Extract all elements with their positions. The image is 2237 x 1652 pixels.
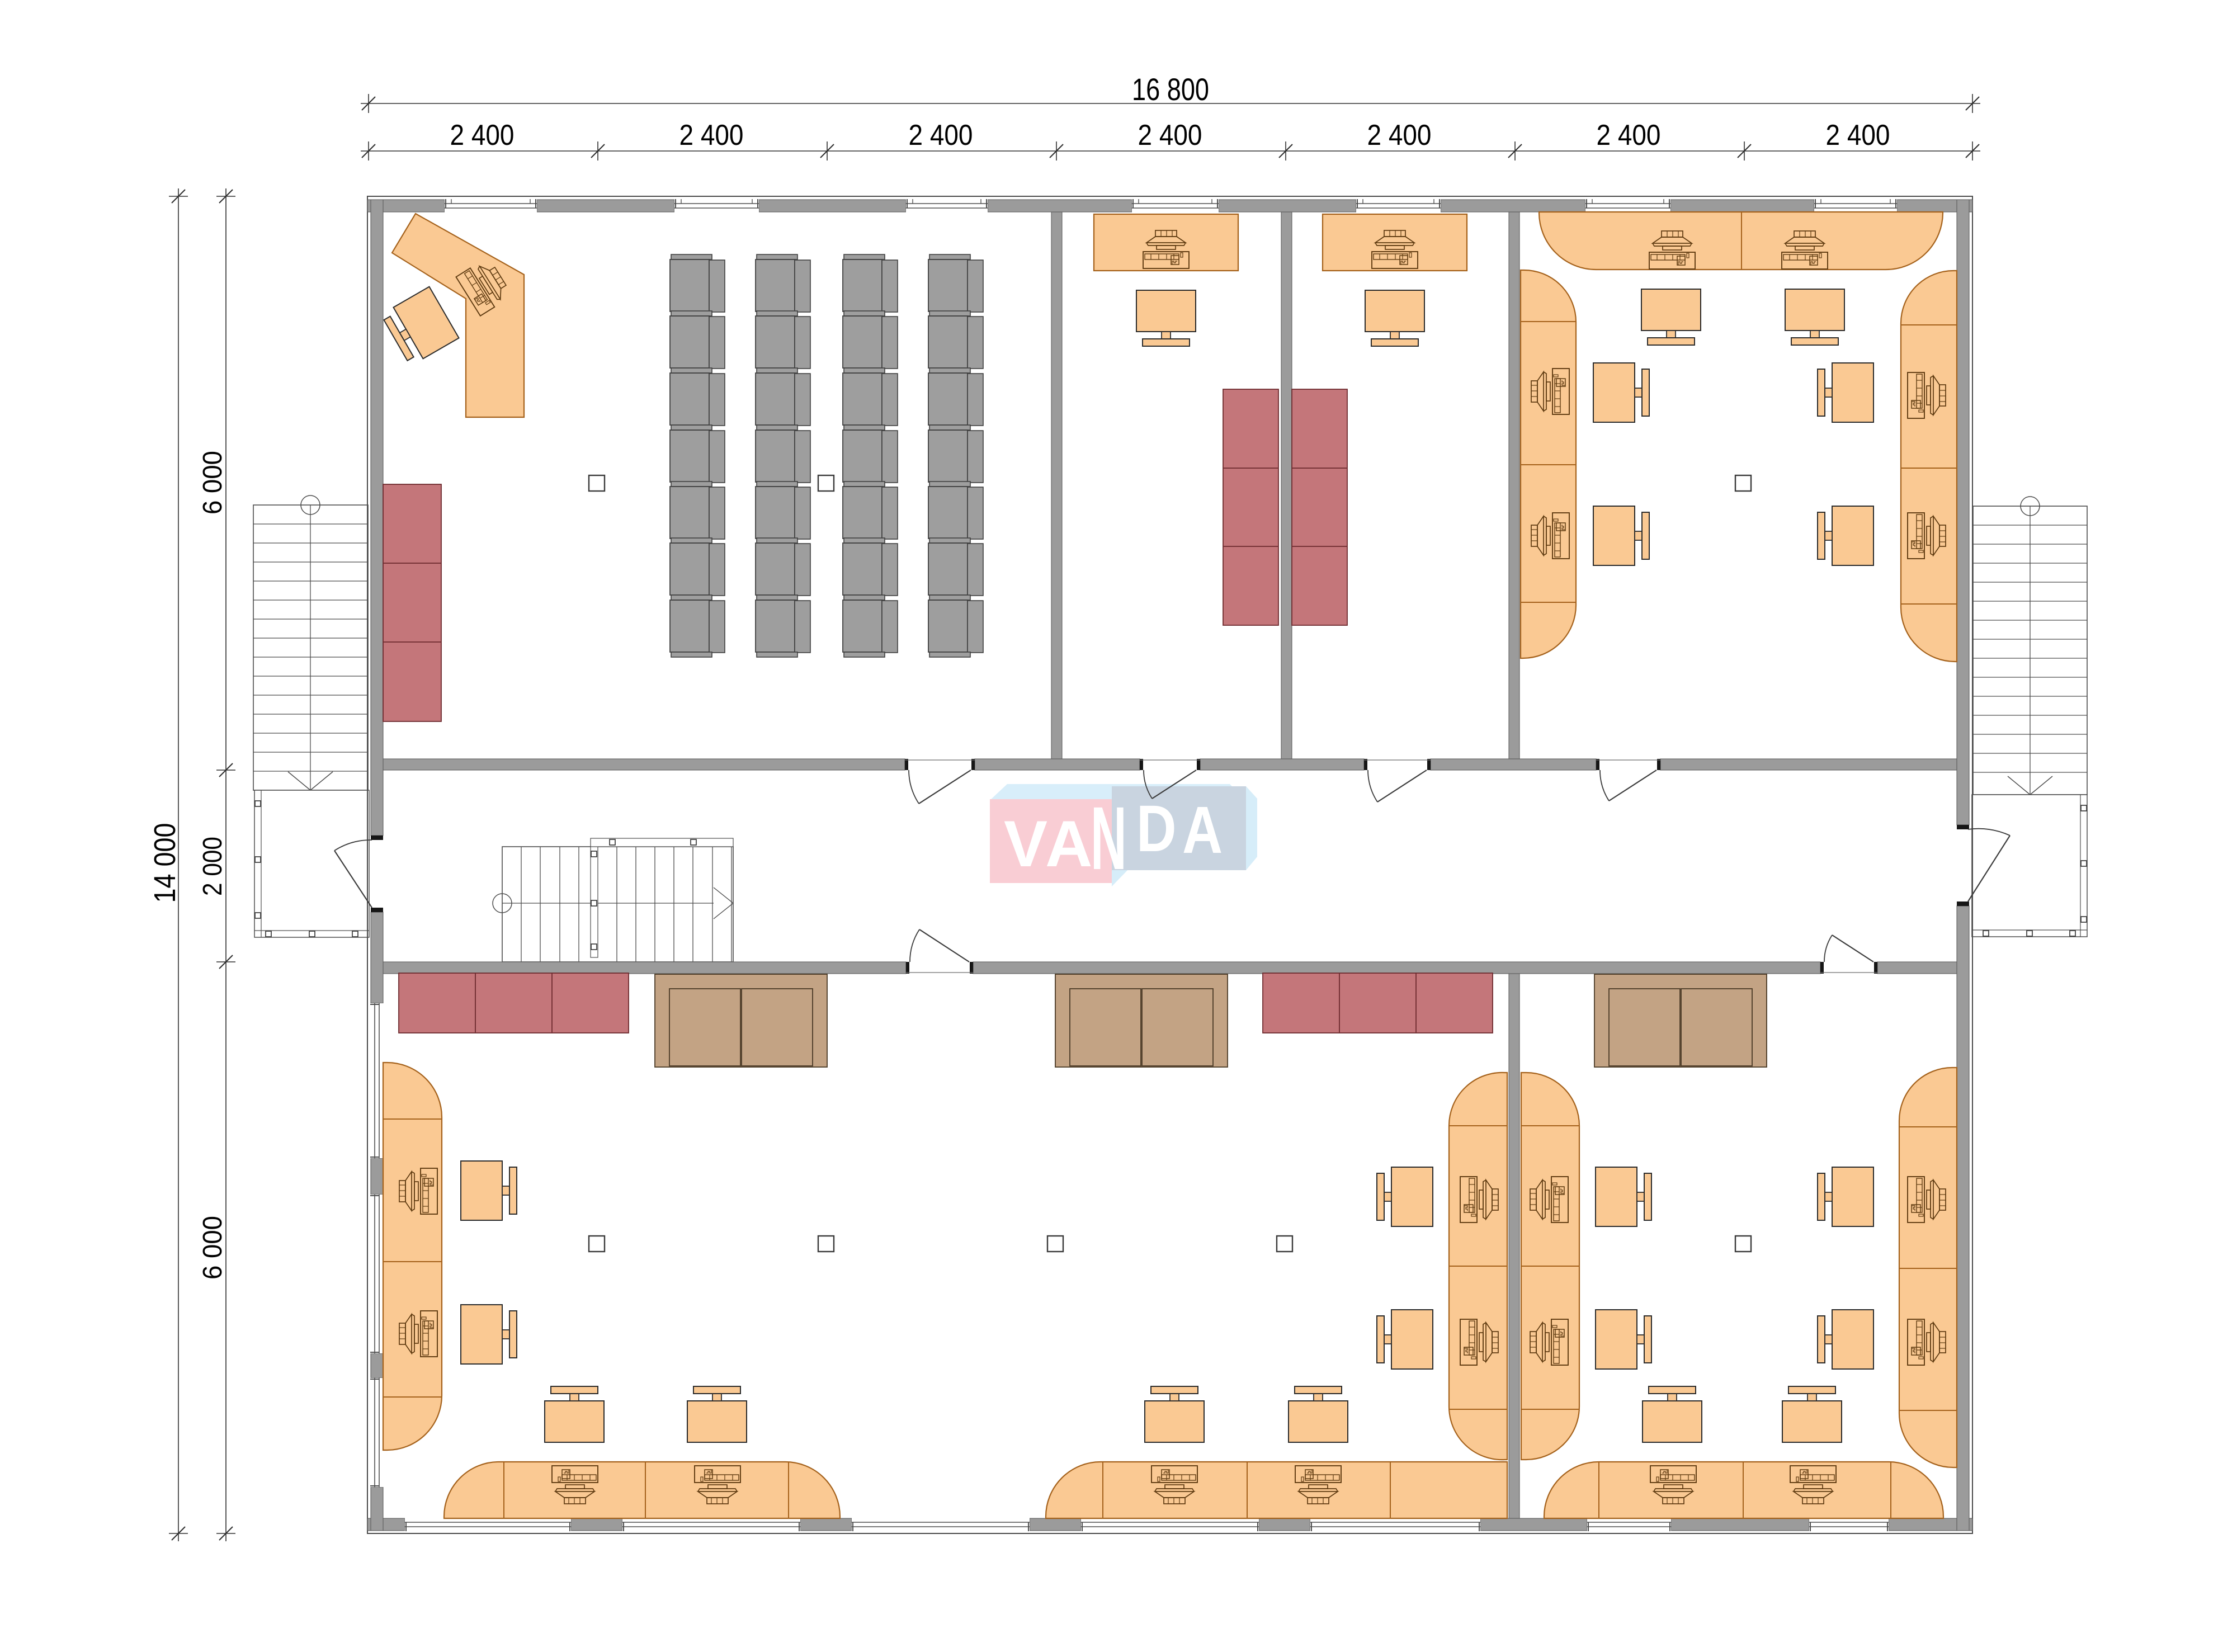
svg-text:2 400: 2 400 <box>450 119 515 152</box>
svg-text:14 000: 14 000 <box>148 823 182 903</box>
svg-text:2 400: 2 400 <box>1826 119 1890 152</box>
svg-text:N: N <box>1091 789 1127 889</box>
svg-text:2 400: 2 400 <box>1138 119 1202 152</box>
svg-text:A: A <box>1045 807 1093 880</box>
svg-text:D: D <box>1136 792 1177 866</box>
svg-text:V: V <box>1004 807 1047 880</box>
svg-text:2 400: 2 400 <box>1367 119 1432 152</box>
svg-text:2 400: 2 400 <box>909 119 973 152</box>
svg-text:6 000: 6 000 <box>198 1216 228 1280</box>
svg-text:2 000: 2 000 <box>198 837 228 896</box>
svg-text:2 400: 2 400 <box>679 119 744 152</box>
svg-text:16 800: 16 800 <box>1132 72 1209 107</box>
svg-text:6 000: 6 000 <box>198 451 228 515</box>
svg-text:2 400: 2 400 <box>1597 119 1661 152</box>
svg-text:A: A <box>1182 794 1223 867</box>
